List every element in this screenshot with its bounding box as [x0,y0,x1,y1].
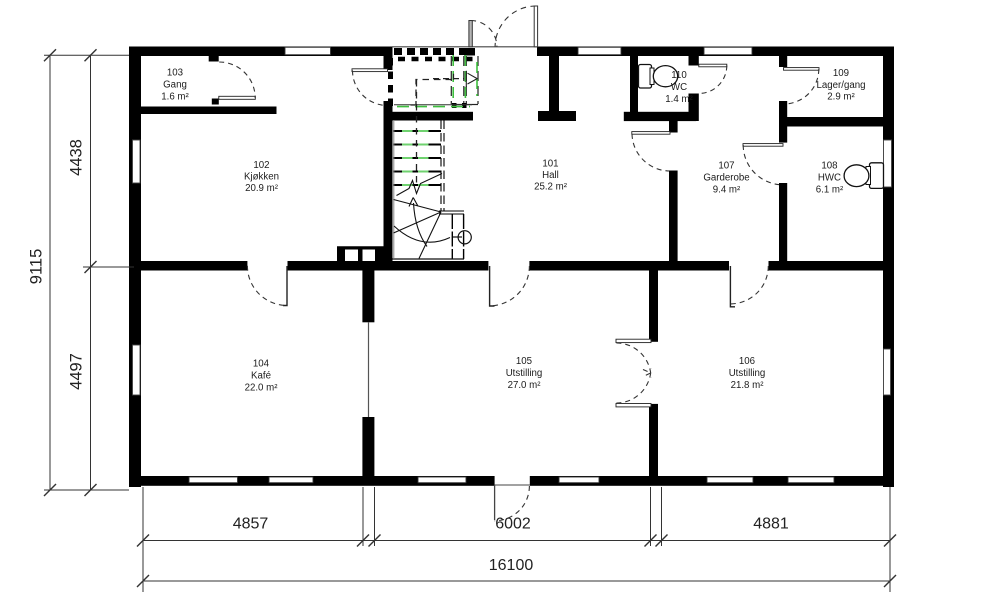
svg-text:25.2 m²: 25.2 m² [534,182,568,193]
svg-text:4438: 4438 [68,139,86,176]
svg-text:4497: 4497 [68,353,86,390]
svg-text:1.6 m²: 1.6 m² [161,92,189,103]
svg-text:Gang: Gang [163,80,187,91]
svg-text:16100: 16100 [489,557,534,574]
svg-text:110: 110 [671,70,687,81]
svg-text:Lager/gang: Lager/gang [816,80,865,91]
svg-text:4881: 4881 [753,516,789,533]
svg-text:109: 109 [833,68,849,79]
svg-text:Utstilling: Utstilling [729,368,766,379]
svg-text:106: 106 [739,356,755,367]
svg-text:4857: 4857 [233,516,269,533]
svg-text:102: 102 [253,160,269,171]
svg-text:22.0 m²: 22.0 m² [245,383,279,394]
svg-text:20.9 m²: 20.9 m² [245,183,279,194]
svg-text:2.9 m²: 2.9 m² [827,92,855,103]
svg-text:108: 108 [821,161,837,172]
svg-text:104: 104 [253,359,270,370]
svg-text:101: 101 [542,159,558,170]
svg-text:103: 103 [167,68,183,79]
svg-text:105: 105 [516,356,532,367]
svg-text:WC: WC [671,82,687,93]
svg-text:21.8 m²: 21.8 m² [731,380,765,391]
svg-text:6002: 6002 [495,516,531,533]
svg-text:Kjøkken: Kjøkken [244,172,279,183]
svg-text:Hall: Hall [542,170,559,181]
svg-text:107: 107 [718,161,734,172]
svg-text:6.1 m²: 6.1 m² [816,185,844,196]
svg-text:1.4 m²: 1.4 m² [665,94,693,105]
svg-text:Garderobe: Garderobe [703,173,749,184]
svg-text:HWC: HWC [818,173,841,184]
svg-text:9.4 m²: 9.4 m² [713,185,741,196]
svg-text:9115: 9115 [28,249,46,284]
svg-text:Kafé: Kafé [251,371,271,382]
svg-text:27.0 m²: 27.0 m² [508,380,542,391]
svg-text:Utstilling: Utstilling [506,368,543,379]
